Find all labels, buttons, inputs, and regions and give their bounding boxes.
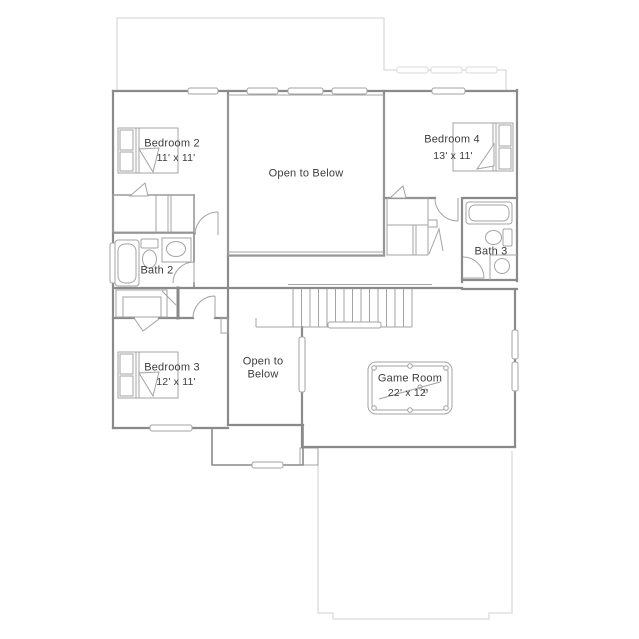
toilet-bowl-icon <box>486 231 502 245</box>
bedroom3-label: Bedroom 3 <box>144 363 200 374</box>
window <box>288 88 323 94</box>
bedroom4-closet-lower <box>387 225 428 255</box>
bath3-bottom-wall <box>462 280 517 289</box>
bedroom2-closet-divider <box>156 195 171 232</box>
doors <box>134 198 484 331</box>
window <box>512 362 518 391</box>
sink-icon <box>167 242 186 257</box>
bath3-door <box>463 257 484 278</box>
closet-door-leaf <box>390 186 406 198</box>
open-to-below-label: Open to Below <box>269 169 344 180</box>
hall-closet <box>116 290 167 317</box>
roofline-upper <box>117 18 506 91</box>
bedroom4-closet-rod <box>413 225 416 255</box>
pocket <box>444 366 449 371</box>
bedroom2-closet <box>113 195 194 232</box>
window <box>247 88 278 94</box>
window <box>512 330 518 359</box>
bedroom4-bed <box>453 123 513 171</box>
game-room-label: Game Room <box>378 374 442 385</box>
roofline-lower <box>318 451 512 619</box>
vestibule-door <box>193 296 215 318</box>
roof-window <box>466 67 497 73</box>
hall-closet-inner <box>123 297 161 317</box>
bath2-door <box>173 262 194 283</box>
game-room-dims: 22' x 12' <box>388 388 428 399</box>
bay-walls <box>212 425 303 465</box>
bedroom2-bed <box>118 128 178 173</box>
closet-door-leaf <box>130 183 148 196</box>
open-to-below-small-label-line2: Below <box>248 370 279 381</box>
stair-treads <box>293 289 412 327</box>
roof-window <box>431 67 462 73</box>
bath3-label: Bath 3 <box>474 247 507 258</box>
bedroom4-door <box>435 198 458 221</box>
window <box>188 88 218 94</box>
closet-stub <box>428 220 437 227</box>
bedroom4-closet <box>387 198 428 225</box>
bath2-label: Bath 2 <box>140 266 173 277</box>
sink-icon <box>495 259 510 274</box>
closet-door-leaf <box>429 229 443 254</box>
bath2-fixtures <box>115 238 191 286</box>
pocket <box>372 366 377 371</box>
hall-closet-door <box>162 291 176 305</box>
bedroom3-door-leaf <box>134 318 159 331</box>
toilet-tank-icon <box>503 229 512 246</box>
roof-window <box>397 67 428 73</box>
pocket <box>372 406 377 411</box>
bath3-fixtures <box>466 202 517 280</box>
pocket <box>444 406 449 411</box>
bedroom2-door <box>195 212 218 235</box>
floor-plan-drawing <box>0 0 639 639</box>
bedroom2-label: Bedroom 2 <box>144 139 200 150</box>
window <box>299 337 305 392</box>
window <box>150 425 192 431</box>
open-to-below-small-label-line1: Open to <box>243 357 284 368</box>
pocket <box>408 408 413 413</box>
floor-plan: Bedroom 2 11' x 11' Open to Below Bedroo… <box>0 0 639 639</box>
window <box>432 88 465 94</box>
stair-handrail <box>328 322 381 328</box>
bedroom2-dims: 11' x 11' <box>157 153 196 164</box>
pocket <box>408 364 413 369</box>
toilet-tank-icon <box>141 239 158 248</box>
bedroom3-dims: 12' x 11' <box>156 377 195 388</box>
staircase <box>256 285 432 329</box>
bedroom4-dims: 13' x 11' <box>433 151 472 162</box>
window <box>252 462 283 468</box>
window <box>332 88 367 94</box>
bedroom4-label: Bedroom 4 <box>424 135 480 146</box>
